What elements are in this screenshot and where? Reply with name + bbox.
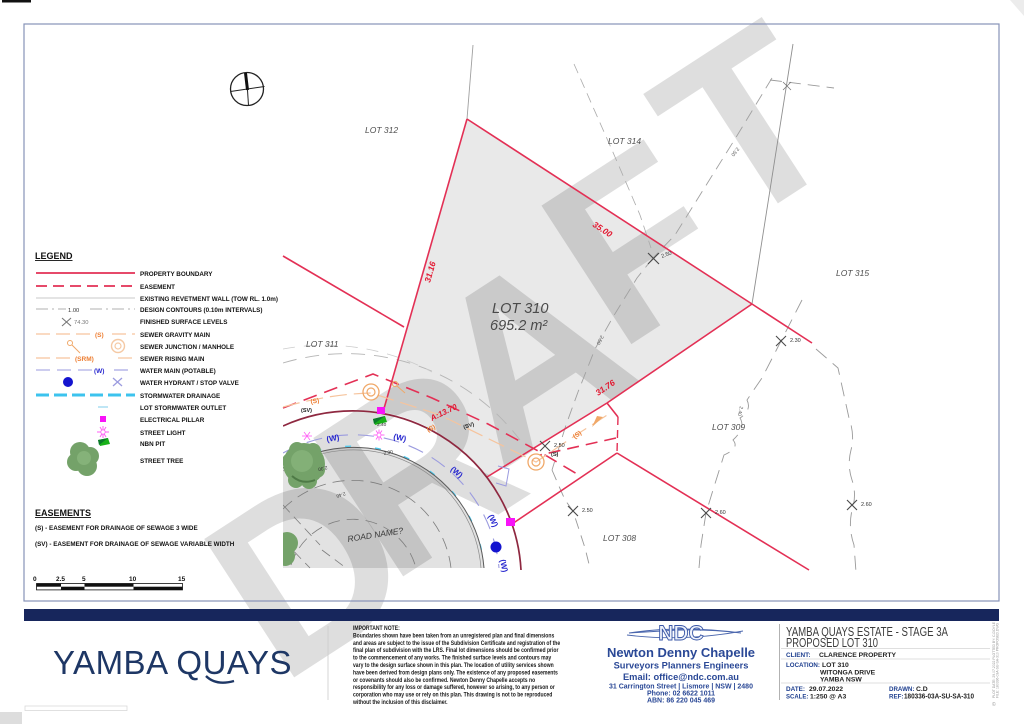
svg-text:ABN: 86 220 045 469: ABN: 86 220 045 469 [647, 698, 715, 705]
svg-text:LOT 310: LOT 310 [822, 662, 849, 669]
svg-text:CLIENT:: CLIENT: [786, 652, 811, 659]
svg-text:Newton Denny Chapelle: Newton Denny Chapelle [607, 645, 755, 660]
svg-text:WATER MAIN (POTABLE): WATER MAIN (POTABLE) [140, 368, 216, 375]
svg-text:LEGEND: LEGEND [35, 251, 73, 261]
svg-text:or covenants should also be co: or covenants should also be confirmed. N… [353, 677, 536, 684]
svg-text:STREET TREE: STREET TREE [140, 458, 183, 465]
svg-text:and areas are subject to the i: and areas are subject to the issue of th… [353, 640, 560, 647]
svg-text:2.5: 2.5 [56, 576, 65, 583]
svg-text:31 Carrington Street | Lismore: 31 Carrington Street | Lismore | NSW | 2… [609, 684, 753, 691]
svg-text:NDC: NDC [658, 622, 704, 645]
svg-text:WITONGA DRIVE: WITONGA DRIVE [820, 670, 876, 677]
svg-text:C.D: C.D [916, 686, 928, 693]
svg-text:YAMBA NSW: YAMBA NSW [820, 677, 862, 684]
svg-text:1.00: 1.00 [68, 308, 79, 314]
svg-text:YAMBA QUAYS: YAMBA QUAYS [53, 644, 292, 681]
svg-text:to the commencement of any wor: to the commencement of any works. The fi… [353, 655, 552, 662]
svg-text:corporation who may use or rel: corporation who may use or rely on this … [353, 692, 553, 699]
svg-text:695.2 m²: 695.2 m² [490, 318, 548, 334]
svg-text:2.60: 2.60 [861, 502, 872, 508]
svg-text:LOT 314: LOT 314 [608, 136, 641, 146]
svg-text:2.40: 2.40 [377, 422, 387, 428]
svg-text:Boundaries shown have been tak: Boundaries shown have been taken from an… [353, 633, 554, 640]
svg-text:LOT 311: LOT 311 [306, 339, 339, 349]
svg-text:Surveyors Planners Engineers: Surveyors Planners Engineers [614, 661, 749, 671]
svg-text:(SRM): (SRM) [75, 356, 94, 363]
svg-text:LOT 310: LOT 310 [492, 301, 548, 317]
svg-text:LOT 312: LOT 312 [365, 125, 398, 135]
svg-text:2.50: 2.50 [554, 443, 565, 449]
svg-text:LOT 309: LOT 309 [712, 422, 745, 432]
svg-text:DATE:: DATE: [786, 686, 805, 693]
svg-text:PROPOSED LOT 310: PROPOSED LOT 310 [786, 636, 878, 650]
svg-text:74.30: 74.30 [74, 320, 89, 326]
svg-text:LOT 308: LOT 308 [603, 533, 636, 543]
svg-text:PROPERTY BOUNDARY: PROPERTY BOUNDARY [140, 271, 213, 278]
svg-text:CLARENCE PROPERTY: CLARENCE PROPERTY [819, 652, 897, 659]
svg-text:LOT STORMWATER OUTLET: LOT STORMWATER OUTLET [140, 405, 226, 412]
svg-text:EASEMENT: EASEMENT [140, 284, 175, 291]
svg-text:DRAWN:: DRAWN: [889, 686, 914, 693]
svg-text:SCALE:: SCALE: [786, 695, 808, 701]
svg-text:EASEMENTS: EASEMENTS [35, 508, 91, 518]
svg-text:have been derived from design: have been derived from design plans only… [353, 670, 558, 677]
svg-text:29.07.2022: 29.07.2022 [809, 686, 843, 693]
svg-text:(SV): (SV) [301, 408, 312, 414]
svg-text:SEWER RISING MAIN: SEWER RISING MAIN [140, 356, 205, 363]
svg-text:REF:: REF: [889, 694, 903, 701]
svg-text:1:250 @ A3: 1:250 @ A3 [810, 694, 846, 701]
svg-text:180336-03A-SU-SA-310: 180336-03A-SU-SA-310 [904, 694, 974, 701]
svg-text:(S): (S) [551, 452, 559, 458]
svg-text:without the inclusion of this: without the inclusion of this disclaimer… [352, 700, 448, 707]
svg-text:2.50: 2.50 [582, 508, 593, 514]
svg-text:responsibility for any loss or: responsibility for any loss or damage su… [353, 685, 556, 692]
svg-text:FILE: 180336-03A-SU-SA-310 PRO: FILE: 180336-03A-SU-SA-310 PROPOSED.DWG [996, 622, 1000, 698]
svg-text:2.30: 2.30 [790, 338, 801, 344]
svg-text:SEWER JUNCTION / MANHOLE: SEWER JUNCTION / MANHOLE [140, 344, 234, 351]
svg-text:EXISTING REVETMENT WALL (TOW R: EXISTING REVETMENT WALL (TOW RL. 1.0m) [140, 296, 278, 303]
svg-text:vary to the design surface sho: vary to the design surface shown in this… [353, 663, 554, 670]
svg-text:5: 5 [82, 576, 86, 583]
svg-text:SEWER GRAVITY MAIN: SEWER GRAVITY MAIN [140, 332, 211, 339]
svg-text:FINISHED SURFACE LEVELS: FINISHED SURFACE LEVELS [140, 319, 227, 326]
svg-text:(SV) - EASEMENT FOR DRAINAGE O: (SV) - EASEMENT FOR DRAINAGE OF SEWAGE V… [35, 541, 235, 548]
svg-text:Email: office@ndc.com.au: Email: office@ndc.com.au [623, 672, 739, 682]
svg-text:STREET LIGHT: STREET LIGHT [140, 430, 186, 437]
svg-text:final plan of subdivision with: final plan of subdivision with the LRS. … [353, 648, 559, 655]
svg-text:ELECTRICAL PILLAR: ELECTRICAL PILLAR [140, 417, 205, 424]
svg-text:0: 0 [33, 576, 37, 583]
svg-text:(S): (S) [95, 332, 104, 339]
svg-text:LOT 315: LOT 315 [836, 268, 869, 278]
svg-text:WATER HYDRANT / STOP VALVE: WATER HYDRANT / STOP VALVE [140, 380, 239, 387]
svg-text:LOCATION:: LOCATION: [786, 662, 820, 669]
svg-text:STORMWATER DRAINAGE: STORMWATER DRAINAGE [140, 393, 220, 400]
svg-text:NBN PIT: NBN PIT [140, 441, 165, 448]
svg-text:IMPORTANT NOTE:: IMPORTANT NOTE: [353, 626, 400, 633]
svg-text:Phone: 02 6622 1011: Phone: 02 6622 1011 [647, 691, 715, 698]
svg-text:©: © [992, 701, 996, 708]
svg-text:(W): (W) [94, 368, 104, 375]
svg-text:DESIGN CONTOURS (0.10m INTERVA: DESIGN CONTOURS (0.10m INTERVALS) [140, 307, 262, 314]
svg-text:2.60: 2.60 [715, 510, 726, 516]
svg-text:(S) - EASEMENT FOR DRAINAGE OF: (S) - EASEMENT FOR DRAINAGE OF SEWAGE 3 … [35, 525, 198, 532]
svg-text:10: 10 [129, 576, 137, 583]
svg-text:15: 15 [178, 576, 186, 583]
